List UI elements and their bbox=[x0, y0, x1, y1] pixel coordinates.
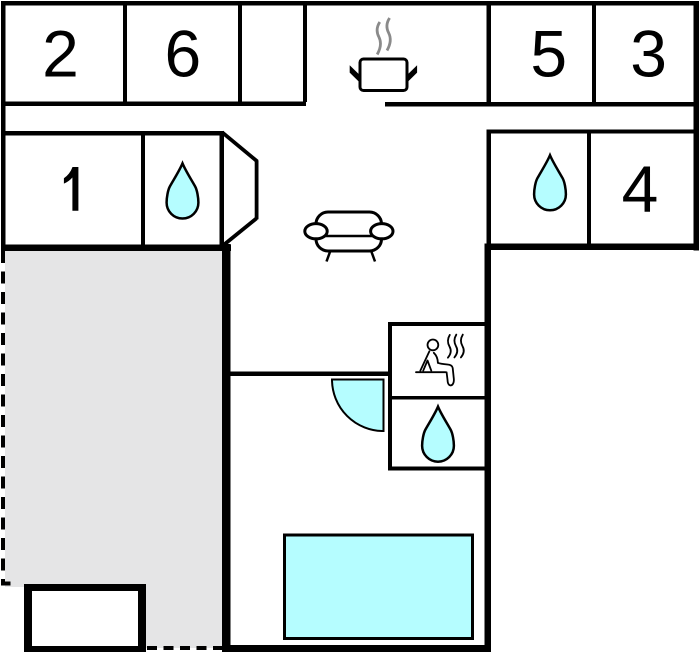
svg-text:3: 3 bbox=[630, 17, 667, 91]
svg-text:6: 6 bbox=[164, 17, 201, 91]
svg-text:2: 2 bbox=[42, 17, 79, 91]
svg-text:5: 5 bbox=[530, 17, 567, 91]
svg-text:4: 4 bbox=[622, 152, 659, 226]
